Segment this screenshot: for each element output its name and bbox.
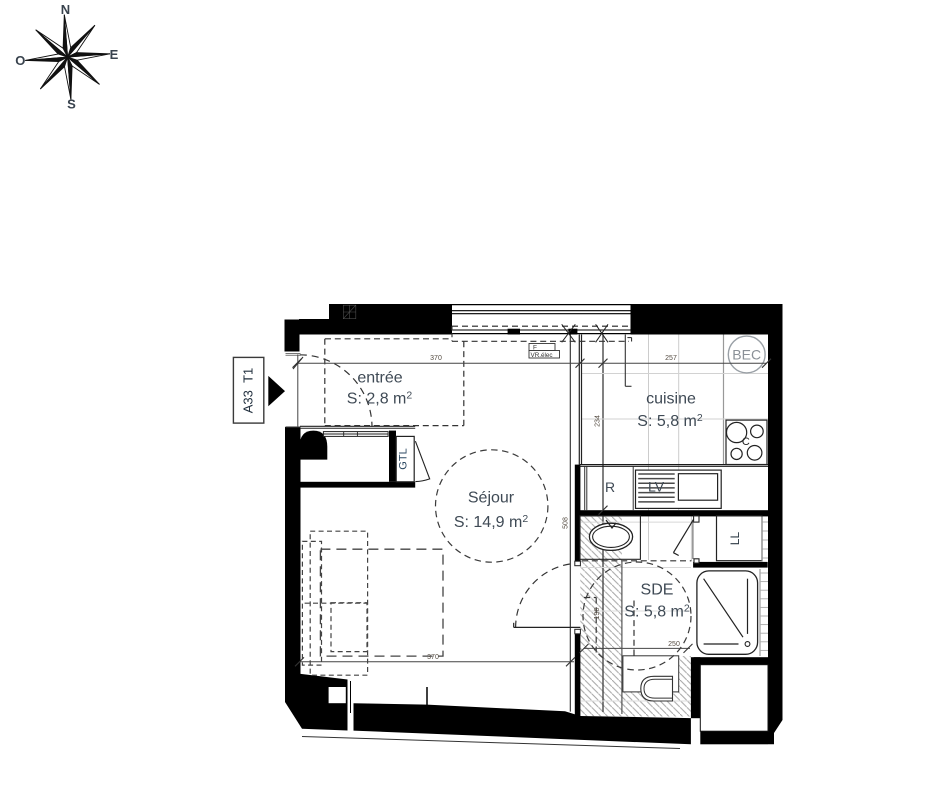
svg-text:R: R <box>605 479 615 495</box>
svg-text:E: E <box>110 47 119 62</box>
svg-text:C: C <box>742 436 750 448</box>
svg-text:196: 196 <box>594 608 601 620</box>
svg-text:S: S <box>67 97 76 112</box>
svg-text:257: 257 <box>665 355 677 362</box>
svg-text:250: 250 <box>668 641 680 648</box>
svg-text:LL: LL <box>728 532 742 546</box>
svg-text:234: 234 <box>595 415 602 427</box>
svg-text:SDE: SDE <box>641 582 674 599</box>
svg-text:cuisine: cuisine <box>646 391 696 408</box>
svg-text:S: 5,8 m2: S: 5,8 m2 <box>637 412 703 430</box>
svg-text:LV: LV <box>648 479 665 495</box>
svg-text:508: 508 <box>562 517 569 529</box>
svg-text:GTL: GTL <box>398 448 410 469</box>
svg-text:S: 5,8 m2: S: 5,8 m2 <box>624 603 690 621</box>
svg-text:Séjour: Séjour <box>468 490 515 507</box>
svg-text:VR.élec: VR.élec <box>531 352 553 359</box>
svg-text:N: N <box>61 2 70 17</box>
svg-text:BEC: BEC <box>732 347 761 363</box>
svg-text:entrée: entrée <box>357 370 402 387</box>
svg-text:370: 370 <box>430 355 442 362</box>
svg-text:370: 370 <box>427 654 439 661</box>
svg-text:S: 14,9 m2: S: 14,9 m2 <box>454 513 528 531</box>
svg-text:O: O <box>15 53 25 68</box>
svg-text:A33 T1: A33 T1 <box>241 368 256 414</box>
svg-text:S: 2,8 m2: S: 2,8 m2 <box>347 390 413 408</box>
